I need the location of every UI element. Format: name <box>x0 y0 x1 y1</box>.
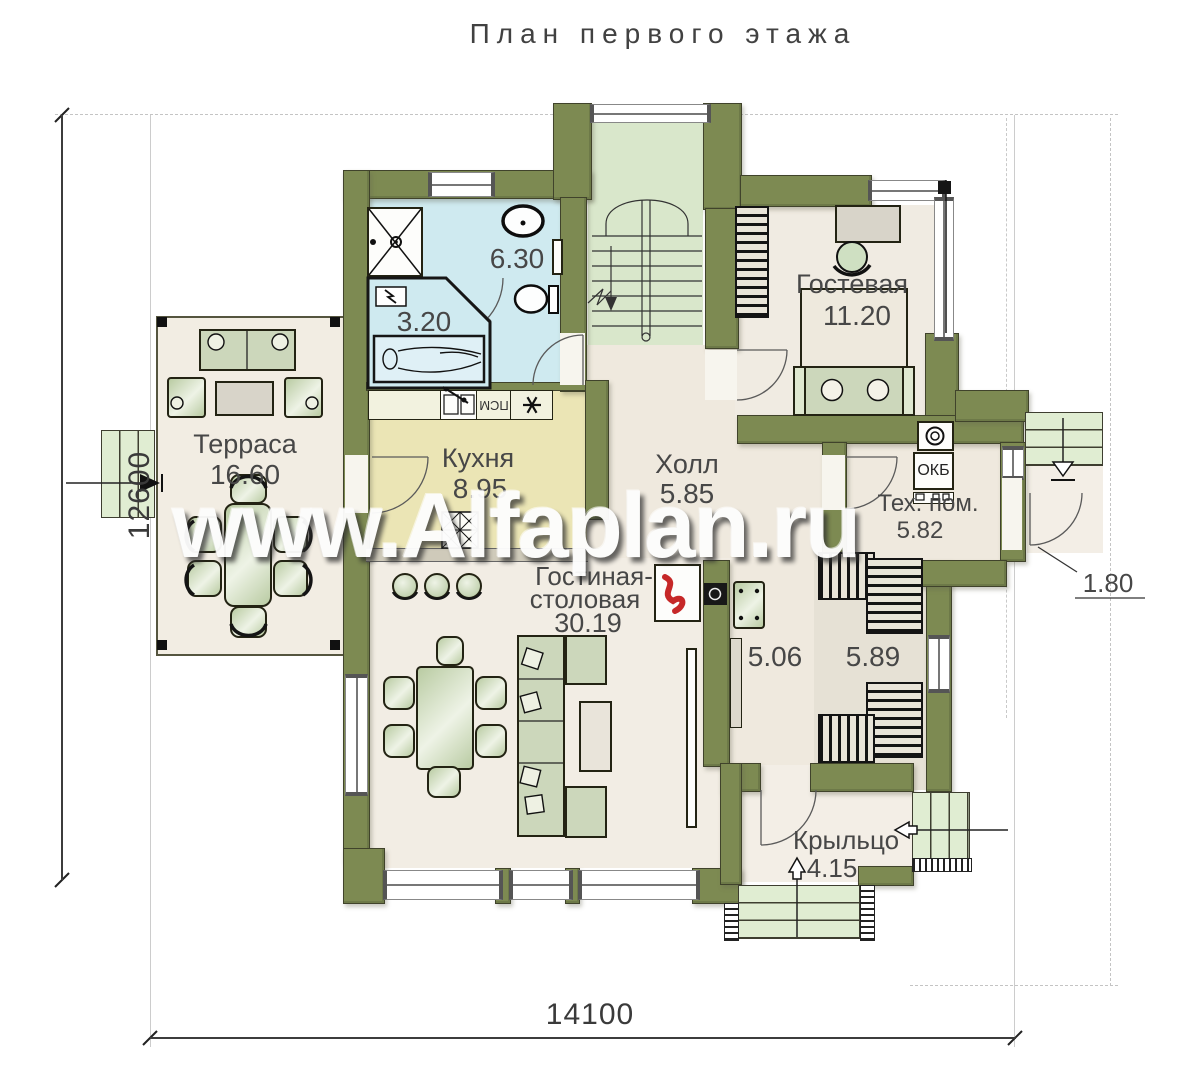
window-top-left <box>428 172 495 197</box>
terrace-corner-marker <box>330 640 340 650</box>
kitchen-counter <box>368 390 442 420</box>
guest-desk <box>835 205 901 243</box>
porch-steps-bottom <box>738 885 860 939</box>
dim-line-left <box>61 115 63 880</box>
sofa-long-section <box>517 635 565 837</box>
extension-line-right <box>1014 115 1015 1047</box>
sofa-arm-top <box>565 635 607 685</box>
wall-top-right <box>740 175 872 207</box>
dishwasher-unit: ПСМ <box>476 390 512 420</box>
tv-panel <box>686 648 697 828</box>
dining-chair <box>436 636 464 666</box>
window-living-bottom-1 <box>383 870 503 900</box>
boiler-unit: ОКБ <box>913 452 954 490</box>
entry-steps <box>1025 412 1103 466</box>
wall-stair-right <box>705 208 739 349</box>
living-area: 30.19 <box>498 609 678 637</box>
entry-area: 1.80 <box>1048 570 1168 597</box>
porch-area: 4.15 <box>742 855 922 882</box>
boiler-label: ОКБ <box>915 462 952 480</box>
window-living-bottom-2 <box>509 870 573 900</box>
guide-far-right-dashed <box>1110 118 1111 986</box>
window-tech-right <box>1002 446 1024 480</box>
dressing-area: 5.89 <box>813 642 933 671</box>
guest-sofa-arm <box>902 366 915 416</box>
porch-hatch-right <box>860 885 875 941</box>
dim-height-label: 12600 <box>123 445 157 545</box>
corridor-table <box>733 581 765 629</box>
wall-bottom-corner-left <box>343 848 385 904</box>
dishwasher-label: ПСМ <box>477 398 511 413</box>
chimney <box>704 583 727 605</box>
porch-hatch-left <box>724 903 739 941</box>
washing-machine <box>917 421 954 451</box>
wall-guest-right <box>925 333 959 422</box>
window-living-left <box>345 674 368 796</box>
dining-chair <box>475 676 507 710</box>
window-living-bottom-3 <box>578 870 700 900</box>
entry-landing-floor <box>1027 465 1103 553</box>
kitchen-sink-unit <box>440 390 478 420</box>
dim-width-label: 14100 <box>530 998 650 1032</box>
dim-line-bottom <box>150 1037 1016 1039</box>
floor-plan-canvas: План первого этажа <box>0 0 1180 1080</box>
dining-chair <box>475 724 507 758</box>
door-gap-bathroom <box>560 333 585 385</box>
closet-rail <box>866 558 923 634</box>
cooktop-unit <box>510 390 553 420</box>
terrace-armchair <box>167 377 206 418</box>
dining-chair <box>427 766 461 798</box>
guest-wardrobe <box>735 206 769 318</box>
sofa-arm-bottom <box>565 786 607 838</box>
terrace-coffee-table <box>215 381 274 416</box>
terrace-corner-marker <box>157 317 167 327</box>
kitchen-name: Кухня <box>398 444 558 472</box>
tech-name: Тех. пом. <box>848 491 1008 516</box>
guest-sofa <box>793 366 915 416</box>
extension-line-left <box>150 115 151 1047</box>
dining-chair <box>383 724 415 758</box>
terrace-sofa <box>199 329 296 371</box>
guest-name: Гостевая <box>762 270 942 298</box>
coffee-table <box>579 701 612 772</box>
door-gap-guest <box>705 350 737 400</box>
terrace-name: Терраса <box>165 430 325 458</box>
shower-cabin <box>367 207 423 277</box>
terrace-armchair <box>284 377 323 418</box>
sauna-area: 3.20 <box>364 307 484 336</box>
watermark: www.Alfaplan.ru <box>172 474 859 579</box>
stairs-floor <box>588 120 703 348</box>
porch-name: Крыльцо <box>756 827 936 854</box>
dining-chair <box>383 676 415 710</box>
dining-table <box>416 666 474 770</box>
guide-bottom-right-dashed <box>910 985 1118 986</box>
guest-sofa-arm <box>793 366 806 416</box>
terrace-corner-marker <box>330 317 340 327</box>
wall-porch-top-right-stub <box>810 763 914 792</box>
bathroom-area: 6.30 <box>457 244 577 273</box>
tech-area: 5.82 <box>840 518 1000 543</box>
terrace-corner-marker <box>157 640 167 650</box>
guest-area: 11.20 <box>767 301 947 330</box>
wall-right-step <box>955 390 1029 422</box>
wall-porch-left <box>720 763 742 885</box>
window-corner-cap <box>938 181 951 194</box>
terrace-chair <box>230 606 267 638</box>
page-title: План первого этажа <box>363 18 963 50</box>
window-stair-bay <box>590 104 711 123</box>
wall-stairbay-pier-left <box>553 103 592 200</box>
closet-rail <box>818 714 875 763</box>
